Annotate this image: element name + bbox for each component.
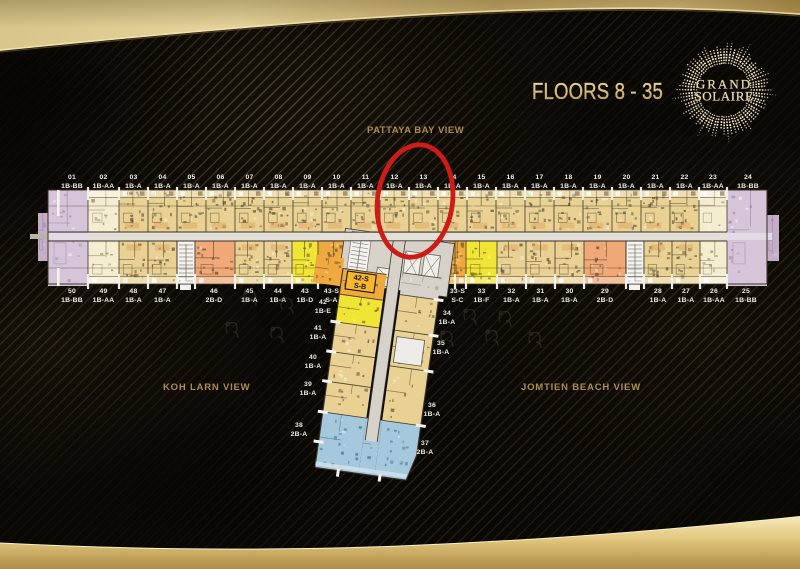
svg-text:30: 30: [566, 288, 574, 295]
svg-text:1B-A: 1B-A: [300, 390, 317, 397]
svg-text:1B-A: 1B-A: [531, 183, 548, 190]
svg-text:1B-A: 1B-A: [433, 349, 450, 356]
svg-text:1B-A: 1B-A: [299, 183, 316, 190]
svg-text:26: 26: [710, 288, 718, 295]
svg-text:2B-D: 2B-D: [206, 297, 223, 304]
svg-text:08: 08: [275, 174, 283, 181]
svg-text:04: 04: [159, 174, 167, 181]
svg-text:1B-A: 1B-A: [676, 183, 693, 190]
svg-text:1B-A: 1B-A: [154, 297, 171, 304]
svg-text:1B-F: 1B-F: [474, 297, 490, 304]
svg-text:1B-A: 1B-A: [618, 183, 635, 190]
svg-text:24: 24: [744, 174, 752, 181]
svg-text:23: 23: [709, 174, 717, 181]
svg-text:1B-AA: 1B-AA: [93, 183, 115, 190]
svg-text:1B-A: 1B-A: [415, 183, 432, 190]
svg-text:21: 21: [652, 174, 660, 181]
svg-text:19: 19: [594, 174, 602, 181]
svg-text:2B-D: 2B-D: [597, 297, 614, 304]
svg-text:25: 25: [742, 288, 750, 295]
svg-text:40: 40: [309, 354, 317, 361]
svg-text:33-S: 33-S: [450, 288, 465, 295]
svg-text:32: 32: [508, 288, 516, 295]
svg-text:05: 05: [188, 174, 196, 181]
svg-text:48: 48: [130, 288, 138, 295]
svg-text:34: 34: [443, 310, 451, 317]
svg-text:1B-A: 1B-A: [561, 297, 578, 304]
svg-text:1B-A: 1B-A: [589, 183, 606, 190]
svg-text:36: 36: [428, 402, 436, 409]
svg-text:1B-A: 1B-A: [241, 183, 258, 190]
svg-text:01: 01: [68, 174, 76, 181]
svg-text:1B-A: 1B-A: [424, 411, 441, 418]
svg-text:18: 18: [565, 174, 573, 181]
svg-text:1B-BB: 1B-BB: [61, 297, 83, 304]
svg-text:31: 31: [537, 288, 545, 295]
svg-text:22: 22: [681, 174, 689, 181]
svg-text:20: 20: [623, 174, 631, 181]
svg-text:S-C: S-C: [451, 297, 463, 304]
svg-text:43: 43: [301, 288, 309, 295]
svg-text:1B-E: 1B-E: [315, 308, 332, 315]
svg-text:S-B: S-B: [353, 281, 367, 292]
svg-text:1B-A: 1B-A: [386, 183, 403, 190]
svg-text:12: 12: [391, 174, 399, 181]
svg-text:1B-BB: 1B-BB: [61, 183, 83, 190]
svg-text:06: 06: [217, 174, 225, 181]
svg-text:37: 37: [421, 440, 429, 447]
svg-text:1B-AA: 1B-AA: [702, 183, 724, 190]
svg-text:1B-BB: 1B-BB: [737, 183, 759, 190]
svg-text:49: 49: [100, 288, 108, 295]
svg-text:1B-A: 1B-A: [305, 363, 322, 370]
svg-text:15: 15: [478, 174, 486, 181]
svg-text:16: 16: [507, 174, 515, 181]
svg-text:1B-A: 1B-A: [154, 183, 171, 190]
svg-text:1B-A: 1B-A: [183, 183, 200, 190]
svg-text:1B-A: 1B-A: [650, 297, 667, 304]
svg-text:46: 46: [210, 288, 218, 295]
svg-text:2B-A: 2B-A: [291, 431, 308, 438]
svg-text:29: 29: [601, 288, 609, 295]
svg-text:50: 50: [68, 288, 76, 295]
svg-text:1B-A: 1B-A: [647, 183, 664, 190]
svg-text:44: 44: [274, 288, 282, 295]
svg-text:43-S: 43-S: [324, 288, 339, 295]
svg-text:09: 09: [304, 174, 312, 181]
svg-text:1B-A: 1B-A: [270, 183, 287, 190]
svg-text:28: 28: [654, 288, 662, 295]
svg-text:27: 27: [682, 288, 690, 295]
svg-text:17: 17: [536, 174, 544, 181]
svg-text:1B-A: 1B-A: [678, 297, 695, 304]
svg-text:11: 11: [362, 174, 370, 181]
svg-text:1B-A: 1B-A: [439, 319, 456, 326]
svg-text:07: 07: [246, 174, 254, 181]
svg-text:1B-A: 1B-A: [310, 334, 327, 341]
svg-text:02: 02: [100, 174, 108, 181]
svg-text:10: 10: [333, 174, 341, 181]
svg-text:1B-AA: 1B-AA: [703, 297, 725, 304]
svg-text:2B-A: 2B-A: [417, 449, 434, 456]
svg-text:1B-D: 1B-D: [297, 297, 314, 304]
svg-text:1B-A: 1B-A: [212, 183, 229, 190]
svg-text:42: 42: [319, 299, 327, 306]
svg-text:1B-A: 1B-A: [473, 183, 490, 190]
svg-text:1B-A: 1B-A: [560, 183, 577, 190]
svg-text:1B-A: 1B-A: [532, 297, 549, 304]
svg-text:39: 39: [304, 381, 312, 388]
svg-text:13: 13: [420, 174, 428, 181]
svg-text:1B-A: 1B-A: [357, 183, 374, 190]
svg-text:03: 03: [130, 174, 138, 181]
svg-text:1B-A: 1B-A: [125, 297, 142, 304]
svg-text:38: 38: [295, 422, 303, 429]
svg-text:1B-A: 1B-A: [328, 183, 345, 190]
svg-text:S-A: S-A: [325, 297, 337, 304]
svg-text:1B-AA: 1B-AA: [93, 297, 115, 304]
svg-text:1B-A: 1B-A: [502, 183, 519, 190]
svg-text:1B-BB: 1B-BB: [735, 297, 757, 304]
svg-text:41: 41: [314, 325, 322, 332]
svg-text:33: 33: [478, 288, 486, 295]
svg-text:47: 47: [159, 288, 167, 295]
svg-text:1B-A: 1B-A: [503, 297, 520, 304]
svg-text:1B-A: 1B-A: [125, 183, 142, 190]
